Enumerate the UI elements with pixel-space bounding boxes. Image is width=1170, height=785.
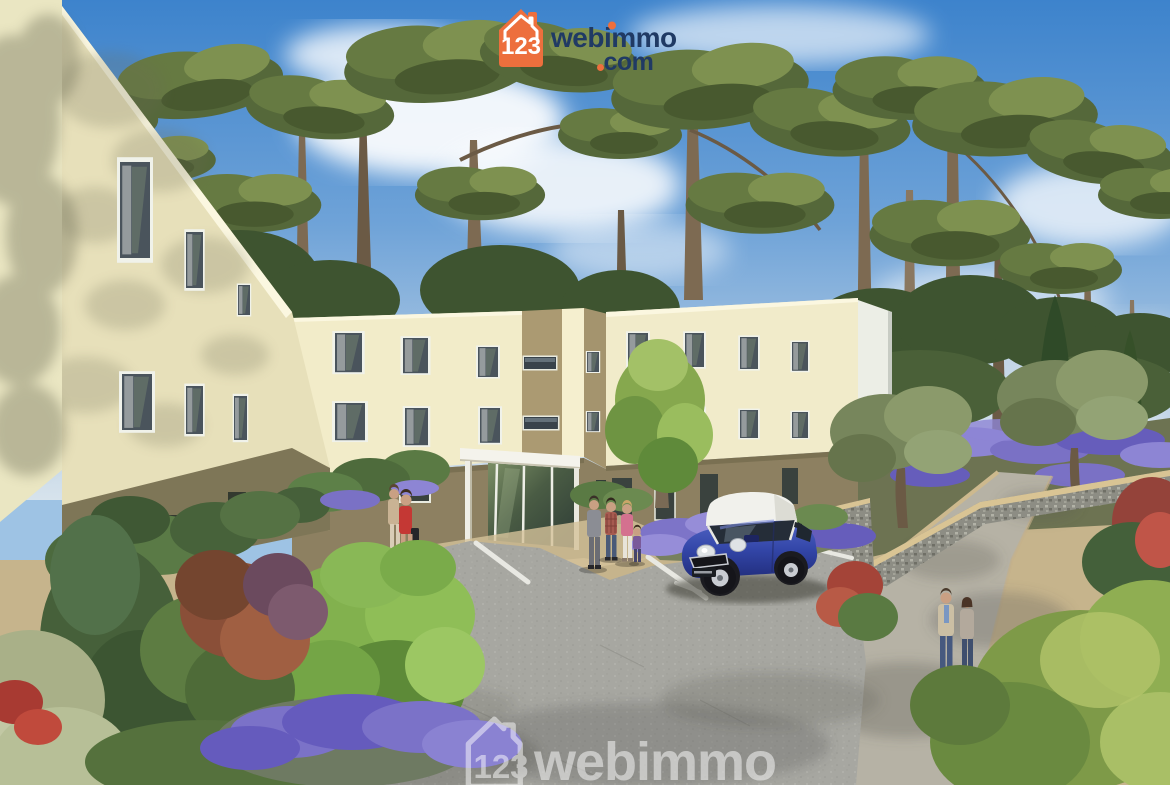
side-return-wall [584,308,608,470]
logo-i-dot [608,22,616,30]
logo-tld-dot [597,64,604,71]
corner-pilaster [562,308,584,458]
logo-tld: .com [597,48,653,76]
watermark-number: 123 [473,748,528,785]
stairwell-bay [522,309,562,460]
render-scene: 123 webimmo .com 123 webimmo .com [0,0,1170,785]
watermark-tld: .com [630,773,743,785]
logo-number: 123 [501,33,541,60]
car-hood-scoop [744,535,759,542]
car-headlight [730,539,746,552]
car-shadow [666,575,830,603]
real-estate-render: 123 webimmo .com 123 webimmo .com [0,0,1170,785]
